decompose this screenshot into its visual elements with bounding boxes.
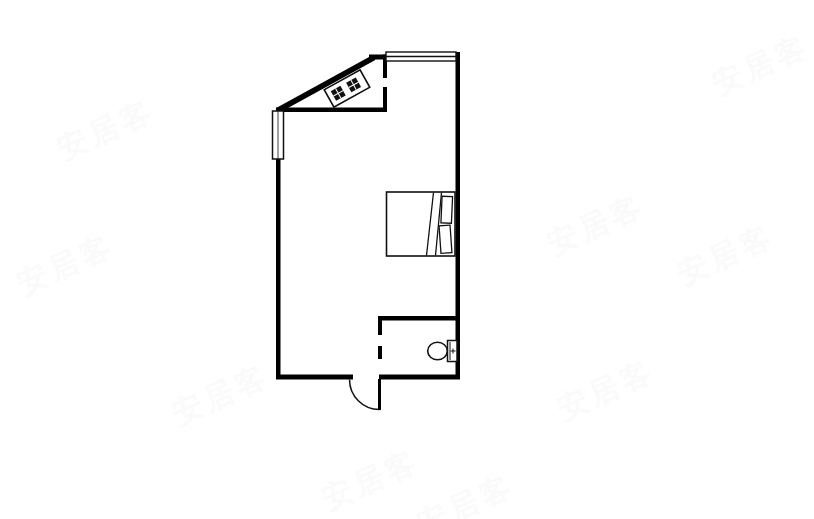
windows — [273, 52, 457, 159]
toilet-icon — [428, 341, 457, 362]
door-leaf — [378, 379, 381, 410]
bottom-wall-left — [276, 375, 353, 380]
kitchen-partition-horizontal-wall — [276, 108, 387, 113]
bathroom-top-wall — [378, 316, 460, 321]
floorplan-drawing — [0, 0, 814, 519]
toilet-bowl — [428, 342, 448, 360]
kitchen-partition-vertical-wall-lower — [383, 87, 387, 108]
door-swing-icon — [350, 379, 382, 410]
door-swing-arc — [350, 380, 380, 410]
bed-icon — [387, 192, 456, 256]
bottom-wall-right — [379, 375, 460, 380]
bed-pillow-top — [441, 196, 453, 223]
bathroom-left-wall-dash — [378, 346, 382, 359]
bathroom-left-wall-upper — [378, 320, 382, 335]
right-wall — [456, 52, 461, 379]
bed-pillow-bottom — [439, 225, 452, 253]
top-window — [386, 52, 456, 61]
floorplan-page: 安居客安居客安居客安居客安居客安居客安居客安居客安居客 — [0, 0, 814, 519]
left-window — [273, 111, 284, 159]
left-wall — [276, 158, 281, 379]
